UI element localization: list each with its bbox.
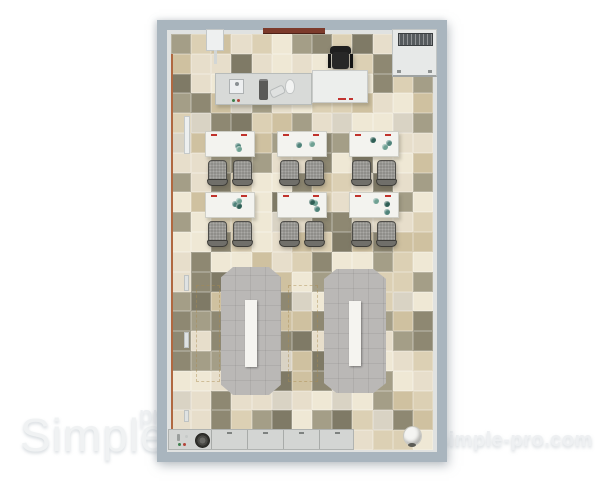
chair-seat xyxy=(233,160,252,181)
cabinet-handle xyxy=(335,432,340,434)
student-chair xyxy=(305,221,324,247)
cabinet-handle xyxy=(227,432,232,434)
chair-back xyxy=(351,179,372,186)
lounge-booth xyxy=(324,269,386,393)
chair-back xyxy=(376,179,397,186)
desk-accessory xyxy=(236,203,242,209)
cabinet-divider xyxy=(319,430,320,449)
chair-back xyxy=(279,179,300,186)
counter-item xyxy=(178,443,181,446)
student-desk xyxy=(277,131,327,157)
desk-accessory xyxy=(384,201,390,207)
chair-back xyxy=(376,240,397,247)
cabinet-divider xyxy=(211,430,212,449)
cooktop-burner xyxy=(195,433,210,448)
student-desk xyxy=(205,192,255,218)
desk-accessory xyxy=(309,141,315,147)
student-chair xyxy=(377,221,396,247)
site-url-watermark: simple-pro.com xyxy=(437,429,593,452)
desk-mark xyxy=(338,98,346,100)
student-chair xyxy=(280,160,299,186)
chair-seat xyxy=(208,221,227,242)
student-desk xyxy=(277,192,327,218)
chair-back xyxy=(351,240,372,247)
counter-item xyxy=(185,435,188,438)
chair-seat xyxy=(377,221,396,242)
student-chair xyxy=(305,160,324,186)
chair-back xyxy=(207,179,228,186)
chair-back xyxy=(304,240,325,247)
bottom-cabinet-row xyxy=(168,429,354,450)
toilet xyxy=(399,424,422,450)
desk-accessory xyxy=(370,137,376,143)
chair-seat xyxy=(352,160,371,181)
desk-accessory xyxy=(384,209,390,215)
teacher-desk xyxy=(312,70,368,103)
lounge-booth xyxy=(221,267,281,395)
counter-item xyxy=(177,434,180,441)
student-chair xyxy=(352,160,371,186)
student-chair xyxy=(280,221,299,247)
chair-back xyxy=(232,179,253,186)
desk-accessory xyxy=(382,144,388,150)
desk-area xyxy=(157,20,447,462)
desk-accessory xyxy=(373,198,379,204)
chair-back xyxy=(207,240,228,247)
student-desk xyxy=(205,131,255,157)
cabinet-handle xyxy=(299,432,304,434)
student-desk xyxy=(349,192,399,218)
toilet-shadow xyxy=(408,443,416,447)
chair-back xyxy=(232,240,253,247)
chair-seat xyxy=(305,221,324,242)
chair-seat xyxy=(352,221,371,242)
chair-seat xyxy=(280,160,299,181)
student-chair xyxy=(233,160,252,186)
chair-back xyxy=(304,179,325,186)
chair-seat xyxy=(208,160,227,181)
student-chair xyxy=(377,160,396,186)
cabinet-divider xyxy=(247,430,248,449)
room-top-view xyxy=(157,20,447,462)
counter-item xyxy=(183,443,186,446)
chair-seat xyxy=(377,160,396,181)
desk-accessory xyxy=(296,142,302,148)
student-chair xyxy=(208,221,227,247)
booth-table xyxy=(245,300,257,367)
desk-accessory xyxy=(236,146,242,152)
desk-mark xyxy=(349,98,353,100)
cabinet-divider xyxy=(283,430,284,449)
student-chair xyxy=(352,221,371,247)
chair-seat xyxy=(233,221,252,242)
render-canvas: Simple pro simple-pro.com xyxy=(0,0,600,483)
chair-seat xyxy=(305,160,324,181)
student-chair xyxy=(233,221,252,247)
booth-table xyxy=(349,301,361,365)
chair-back xyxy=(279,240,300,247)
student-chair xyxy=(208,160,227,186)
desk-accessory xyxy=(314,206,320,212)
chair-seat xyxy=(280,221,299,242)
cabinet-handle xyxy=(263,432,268,434)
student-desk xyxy=(349,131,399,157)
